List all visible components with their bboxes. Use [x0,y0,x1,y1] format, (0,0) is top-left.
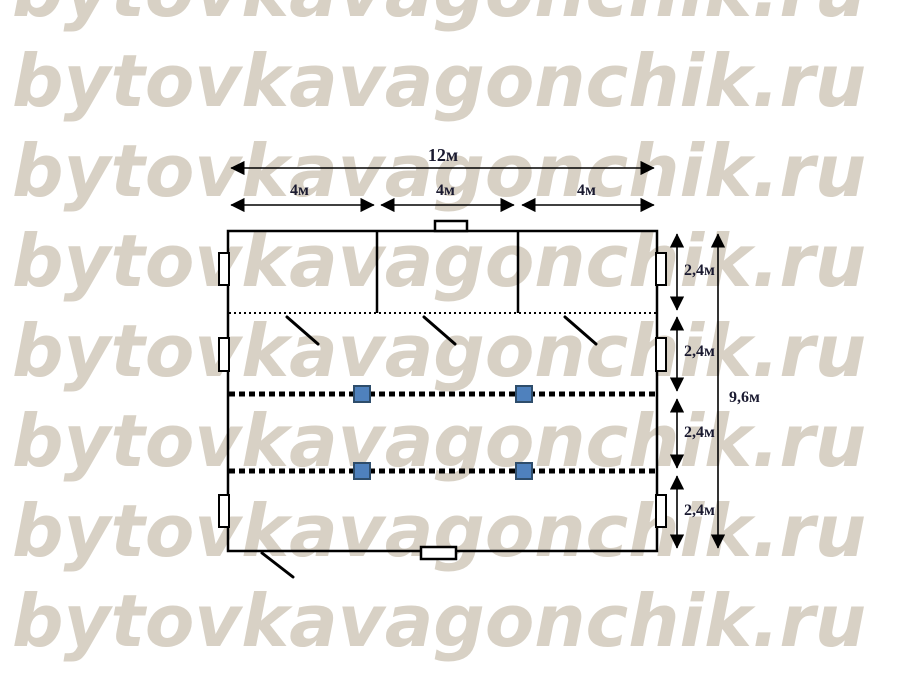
leader-line [287,317,318,344]
leader-line [565,317,596,344]
dim-label-segment-width: 4м [577,182,596,200]
leader-line [262,553,293,577]
column-marker [354,463,370,479]
window-tab-left [219,338,229,371]
column-marker [354,386,370,402]
dim-label-total-width: 12м [428,145,458,166]
dim-label-row-height: 2,4м [684,343,715,361]
dim-label-total-height: 9,6м [729,389,760,407]
dim-label-row-height: 2,4м [684,424,715,442]
dim-label-row-height: 2,4м [684,502,715,520]
dim-label-segment-width: 4м [436,182,455,200]
floor-plan-drawing [0,0,900,675]
door-bottom [421,547,456,559]
window-tab-right [656,495,666,527]
column-marker [516,386,532,402]
column-marker [516,463,532,479]
page-canvas: bytovkavagonchik.ru bytovkavagonchik.ru … [0,0,900,675]
building-outline [228,231,657,551]
window-tab-left [219,495,229,527]
leader-line [424,317,455,344]
window-tab-right [656,338,666,371]
door-top [435,221,467,231]
window-tab-left [219,253,229,285]
dim-label-segment-width: 4м [290,182,309,200]
window-tab-right [656,253,666,285]
dim-label-row-height: 2,4м [684,262,715,280]
